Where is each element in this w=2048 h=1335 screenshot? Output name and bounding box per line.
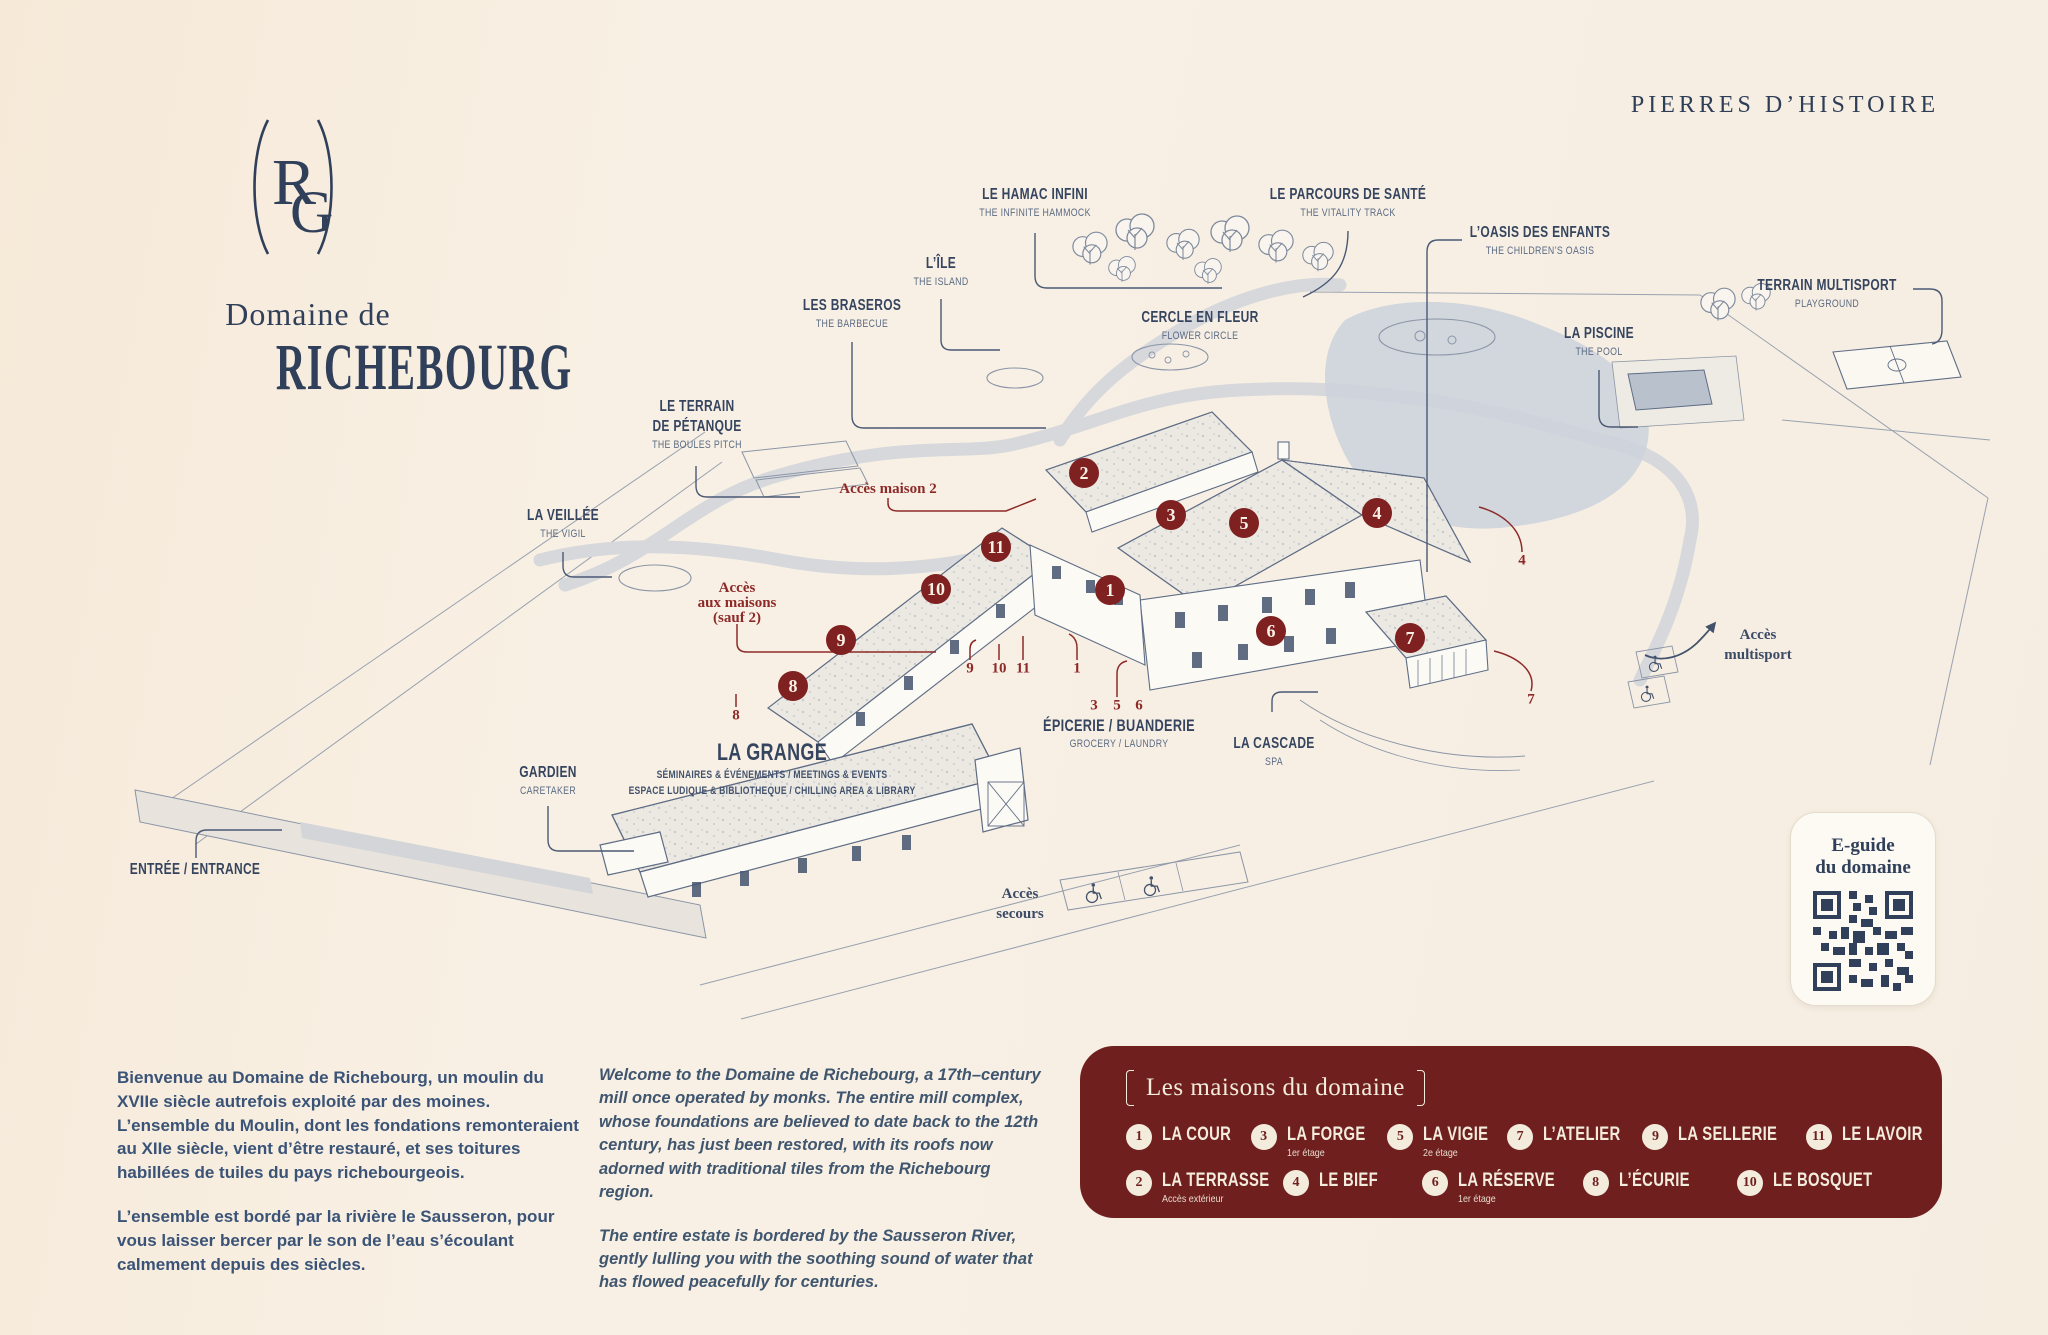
door-number-8: 8 — [732, 708, 740, 725]
poi-en: THE ISLAND — [913, 275, 968, 289]
note-acces-secours: Accès secours — [996, 884, 1044, 925]
legend-item-le-bief: 4 LE BIEF — [1283, 1171, 1422, 1196]
legend-note: 2e étage — [1423, 1147, 1494, 1159]
legend-item-la-forge: 3 LA FORGE1er étage — [1251, 1125, 1388, 1159]
legend-label: LA COUR — [1162, 1125, 1231, 1145]
poi-piscine: LA PISCINE THE POOL — [1552, 324, 1645, 359]
door-number-7: 7 — [1527, 692, 1535, 709]
house-marker-1: 1 — [1095, 575, 1125, 605]
note-line: aux maisons — [698, 596, 777, 611]
legend-badge: 11 — [1806, 1124, 1832, 1150]
estate-map-poster: R G Domaine de RICHEBOURG PIERRES D’HIST… — [0, 0, 2048, 1335]
legend-label: L’ATELIER — [1543, 1125, 1620, 1145]
poi-en: THE POOL — [1562, 345, 1637, 359]
legend-item-la-terrasse: 2 LA TERRASSEAccès extérieur — [1126, 1171, 1283, 1205]
door-number-5: 5 — [1113, 698, 1121, 715]
legend-badge: 7 — [1507, 1124, 1533, 1150]
legend-label: LA FORGE — [1287, 1125, 1366, 1145]
poi-veillee: LA VEILLÉE THE VIGIL — [515, 506, 611, 541]
note-line: multisport — [1724, 645, 1792, 665]
poi-terrain-multisport: TERRAIN MULTISPORT PLAYGROUND — [1734, 276, 1920, 311]
legend-title: Les maisons du domaine — [1126, 1070, 1425, 1106]
estate-title-prefix: Domaine de — [158, 296, 458, 333]
poi-fr: DE PÉTANQUE — [652, 417, 741, 437]
door-number-10: 10 — [992, 661, 1007, 678]
legend-badge: 3 — [1251, 1124, 1277, 1150]
poi-en: CARETAKER — [517, 784, 578, 798]
poi-braseros: LES BRASEROS THE BARBECUE — [786, 296, 917, 331]
door-number-3: 3 — [1090, 698, 1098, 715]
poi-en: THE BOULES PITCH — [649, 438, 744, 452]
poi-fr: LE HAMAC INFINI — [982, 185, 1088, 205]
legend-label: LE BOSQUET — [1773, 1171, 1872, 1191]
legend-item-l-atelier: 7 L’ATELIER — [1507, 1125, 1642, 1150]
estate-monogram-logo: R G — [234, 112, 352, 267]
note-line: Accès — [698, 581, 777, 596]
legend-item-l-ecurie: 8 L’ÉCURIE — [1583, 1171, 1737, 1196]
door-number-6: 6 — [1135, 698, 1143, 715]
legend-row-1: 1 LA COUR 3 LA FORGE1er étage 5 LA VIGIE… — [1126, 1125, 1902, 1159]
poi-oasis-enfants: L’OASIS DES ENFANTS THE CHILDREN’S OASIS — [1446, 223, 1633, 258]
house-marker-9: 9 — [826, 625, 856, 655]
legend-badge: 8 — [1583, 1170, 1609, 1196]
poi-fr: LE TERRAIN — [652, 397, 741, 417]
poi-en: THE VIGIL — [525, 527, 602, 541]
poi-parcours-sante: LE PARCOURS DE SANTÉ THE VITALITY TRACK — [1244, 185, 1453, 220]
poi-terrain-petanque: LE TERRAIN DE PÉTANQUE THE BOULES PITCH — [638, 397, 757, 452]
estate-guide-card: E-guide du domaine — [1790, 812, 1936, 1006]
legend-label: LA TERRASSE — [1162, 1171, 1269, 1191]
legend-badge: 6 — [1422, 1170, 1448, 1196]
poi-fr: TERRAIN MULTISPORT — [1757, 276, 1896, 296]
intro-en-paragraph-1: Welcome to the Domaine de Richebourg, a … — [599, 1064, 1049, 1205]
legend-title-text: Les maisons du domaine — [1146, 1074, 1405, 1102]
poi-epicerie-buanderie: ÉPICERIE / BUANDERIE GROCERY / LAUNDRY — [1018, 715, 1221, 752]
legend-badge: 2 — [1126, 1170, 1152, 1196]
legend-label: LA RÉSERVE — [1458, 1171, 1555, 1191]
svg-text:G: G — [290, 179, 333, 245]
legend-label: LA VIGIE — [1423, 1125, 1488, 1145]
estate-title: RICHEBOURG — [185, 330, 485, 406]
intro-en-paragraph-2: The entire estate is bordered by the Sau… — [599, 1225, 1049, 1295]
house-marker-3: 3 — [1156, 500, 1186, 530]
legend-badge: 5 — [1387, 1124, 1413, 1150]
note-line: Accès — [1724, 625, 1792, 645]
legend-label: LA SELLERIE — [1678, 1125, 1777, 1145]
poi-fr: ENTRÉE / ENTRANCE — [130, 860, 260, 880]
legend-label: LE LAVOIR — [1842, 1125, 1923, 1145]
poi-gardien: GARDIEN CARETAKER — [510, 763, 587, 798]
brand-name: PIERRES D’HISTOIRE — [1630, 92, 1940, 119]
poi-en: THE CHILDREN’S OASIS — [1465, 244, 1615, 258]
intro-english: Welcome to the Domaine de Richebourg, a … — [599, 1064, 1049, 1315]
poi-fr: L’OASIS DES ENFANTS — [1470, 223, 1610, 243]
poi-sub: SÉMINAIRES & ÉVÉNEMENTS / MEETINGS & EVE… — [629, 768, 916, 784]
door-number-1: 1 — [1073, 661, 1081, 678]
poi-fr: CERCLE EN FLEUR — [1141, 308, 1258, 328]
legend-item-la-reserve: 6 LA RÉSERVE1er étage — [1422, 1171, 1582, 1205]
legend-row-2: 2 LA TERRASSEAccès extérieur 4 LE BIEF 6… — [1126, 1171, 1902, 1205]
poi-fr: LA GRANGE — [634, 738, 910, 768]
poi-fr: L’ÎLE — [915, 254, 967, 274]
legend-badge: 9 — [1642, 1124, 1668, 1150]
note-line: Accès — [996, 884, 1044, 904]
note-acces-multisport: Accès multisport — [1724, 625, 1792, 666]
note-acces-maison-2: Accès maison 2 — [839, 482, 937, 497]
poi-fr: LA VEILLÉE — [527, 506, 599, 526]
poi-fr: LES BRASEROS — [803, 296, 901, 316]
poi-grange: LA GRANGE SÉMINAIRES & ÉVÉNEMENTS / MEET… — [588, 738, 956, 800]
legend-rows: 1 LA COUR 3 LA FORGE1er étage 5 LA VIGIE… — [1126, 1125, 1902, 1205]
poi-en: THE VITALITY TRACK — [1265, 206, 1432, 220]
legend-item-la-sellerie: 9 LA SELLERIE — [1642, 1125, 1805, 1150]
intro-fr-paragraph-2: L’ensemble est bordé par la rivière le S… — [117, 1205, 583, 1276]
poi-entree: ENTRÉE / ENTRANCE — [108, 860, 282, 880]
qr-title-line2: du domaine — [1815, 857, 1911, 879]
poi-en: THE BARBECUE — [800, 317, 905, 331]
door-number-4: 4 — [1518, 553, 1526, 570]
poi-fr: GARDIEN — [519, 763, 576, 783]
poi-en: GROCERY / LAUNDRY — [1038, 737, 1200, 751]
qr-title-line1: E-guide — [1815, 835, 1911, 857]
house-marker-5: 5 — [1229, 508, 1259, 538]
qr-code — [1813, 891, 1913, 991]
legend-label: L’ÉCURIE — [1619, 1171, 1690, 1191]
legend-badge: 10 — [1737, 1170, 1763, 1196]
poi-ile: L’ÎLE THE ISLAND — [907, 254, 976, 289]
legend-badge: 4 — [1283, 1170, 1309, 1196]
door-number-9: 9 — [966, 661, 974, 678]
poi-fr: LE PARCOURS DE SANTÉ — [1270, 185, 1426, 205]
poi-en: SPA — [1231, 755, 1318, 769]
intro-french: Bienvenue au Domaine de Richebourg, un m… — [117, 1066, 583, 1296]
houses-legend: Les maisons du domaine 1 LA COUR 3 LA FO… — [1080, 1046, 1942, 1218]
poi-fr: LA CASCADE — [1233, 734, 1314, 754]
poi-fr: LA PISCINE — [1564, 324, 1634, 344]
house-marker-4: 4 — [1362, 498, 1392, 528]
legend-badge: 1 — [1126, 1124, 1152, 1150]
poi-sub: ESPACE LUDIQUE & BIBLIOTHEQUE / CHILLING… — [629, 784, 916, 800]
poi-fr: ÉPICERIE / BUANDERIE — [1043, 715, 1195, 736]
house-marker-2: 2 — [1069, 458, 1099, 488]
qr-card-title: E-guide du domaine — [1815, 835, 1911, 879]
poi-en: PLAYGROUND — [1753, 297, 1901, 311]
bracket-right-icon — [1417, 1070, 1425, 1106]
legend-note: 1er étage — [1458, 1193, 1564, 1205]
poi-cascade-spa: LA CASCADE SPA — [1220, 734, 1328, 769]
note-acces-aux-maisons: Accès aux maisons (sauf 2) — [698, 581, 777, 626]
poi-hamac-infini: LE HAMAC INFINI THE INFINITE HAMMOCK — [964, 185, 1105, 220]
poi-en: FLOWER CIRCLE — [1138, 329, 1263, 343]
bracket-left-icon — [1126, 1070, 1134, 1106]
house-marker-11: 11 — [981, 532, 1011, 562]
house-marker-8: 8 — [778, 671, 808, 701]
house-marker-6: 6 — [1256, 616, 1286, 646]
legend-note: Accès extérieur — [1162, 1193, 1279, 1205]
door-number-11: 11 — [1016, 661, 1030, 678]
legend-item-le-bosquet: 10 LE BOSQUET — [1737, 1171, 1902, 1196]
legend-item-le-lavoir: 11 LE LAVOIR — [1806, 1125, 1946, 1150]
estate-title-text: RICHEBOURG — [276, 330, 573, 406]
legend-label: LE BIEF — [1319, 1171, 1378, 1191]
poi-cercle-en-fleur: CERCLE EN FLEUR FLOWER CIRCLE — [1122, 308, 1278, 343]
house-marker-7: 7 — [1395, 623, 1425, 653]
house-marker-10: 10 — [921, 574, 951, 604]
legend-item-la-cour: 1 LA COUR — [1126, 1125, 1251, 1150]
poi-en: THE INFINITE HAMMOCK — [979, 206, 1092, 220]
note-line: secours — [996, 904, 1044, 924]
intro-fr-paragraph-1: Bienvenue au Domaine de Richebourg, un m… — [117, 1066, 583, 1185]
legend-item-la-vigie: 5 LA VIGIE2e étage — [1387, 1125, 1507, 1159]
legend-note: 1er étage — [1287, 1147, 1373, 1159]
note-line: (sauf 2) — [698, 611, 777, 626]
